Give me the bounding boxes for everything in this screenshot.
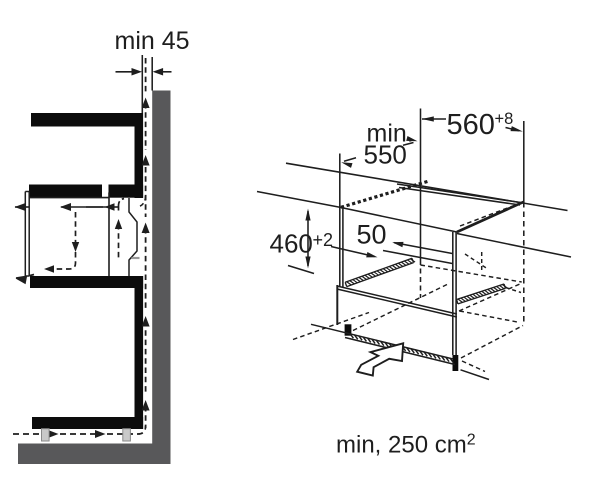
svg-text:560: 560 [447, 109, 495, 141]
svg-text:min 45: min 45 [115, 27, 190, 55]
svg-text:+2: +2 [313, 230, 334, 250]
svg-text:+8: +8 [495, 110, 514, 128]
svg-text:min, 250 cm2: min, 250 cm2 [336, 432, 476, 459]
svg-text:50: 50 [357, 220, 387, 250]
svg-text:550: 550 [364, 140, 407, 170]
svg-text:460: 460 [270, 229, 313, 259]
